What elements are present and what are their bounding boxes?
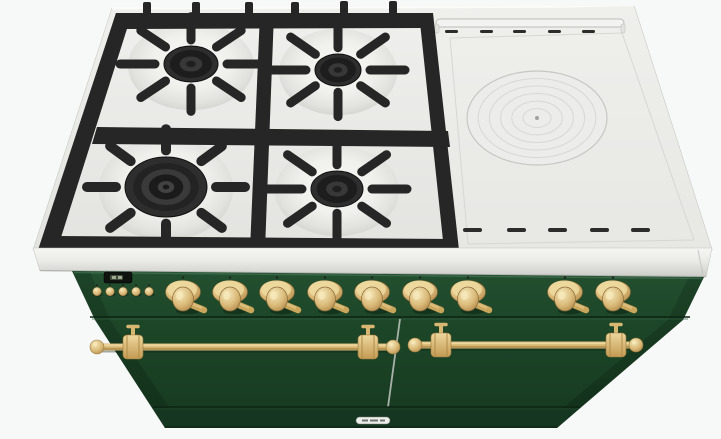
front-left-wok-burner — [125, 157, 207, 217]
rail-ball-finial — [408, 338, 422, 352]
rail-ball-finial — [386, 340, 400, 354]
knob-index-mark — [276, 276, 278, 278]
render-canvas[interactable] — [0, 0, 721, 439]
brand-badge — [356, 417, 390, 424]
knob-index-mark — [371, 276, 373, 278]
vent-slot — [445, 30, 458, 33]
rail-bracket — [123, 335, 143, 359]
knob-index-mark — [229, 276, 231, 278]
kick-panel — [153, 408, 580, 428]
vent-slot — [507, 228, 526, 232]
rail-bracket — [606, 333, 626, 357]
rail-ball-finial — [90, 340, 104, 354]
knob-index-mark — [564, 276, 566, 278]
back-left-burner — [164, 46, 218, 82]
knob-index-mark — [612, 276, 614, 278]
rail-ball-finial — [629, 338, 643, 352]
vent-slot — [513, 30, 526, 33]
knob-index-mark — [419, 276, 421, 278]
vent-slot — [480, 30, 493, 33]
vent-slot — [548, 228, 567, 232]
knob-index-mark — [467, 276, 469, 278]
rail-bracket — [431, 333, 451, 357]
back-right-burner — [315, 54, 361, 86]
griddle-handle-rail — [436, 19, 624, 27]
rail-bracket — [358, 335, 378, 359]
knob-index-mark — [182, 276, 184, 278]
vent-slot — [463, 228, 482, 232]
clock-digit — [118, 276, 122, 279]
clock-digit — [112, 276, 116, 279]
vent-slot — [590, 228, 609, 232]
rail-end-left — [435, 24, 439, 33]
vent-slot — [582, 30, 595, 33]
simmer-plate — [467, 71, 607, 165]
knob-index-mark — [324, 276, 326, 278]
vent-slot — [631, 228, 650, 232]
vent-slot — [548, 30, 561, 33]
rail-end-right — [621, 24, 625, 33]
front-right-burner — [311, 171, 363, 207]
range-cooker-scene[interactable] — [0, 0, 721, 439]
